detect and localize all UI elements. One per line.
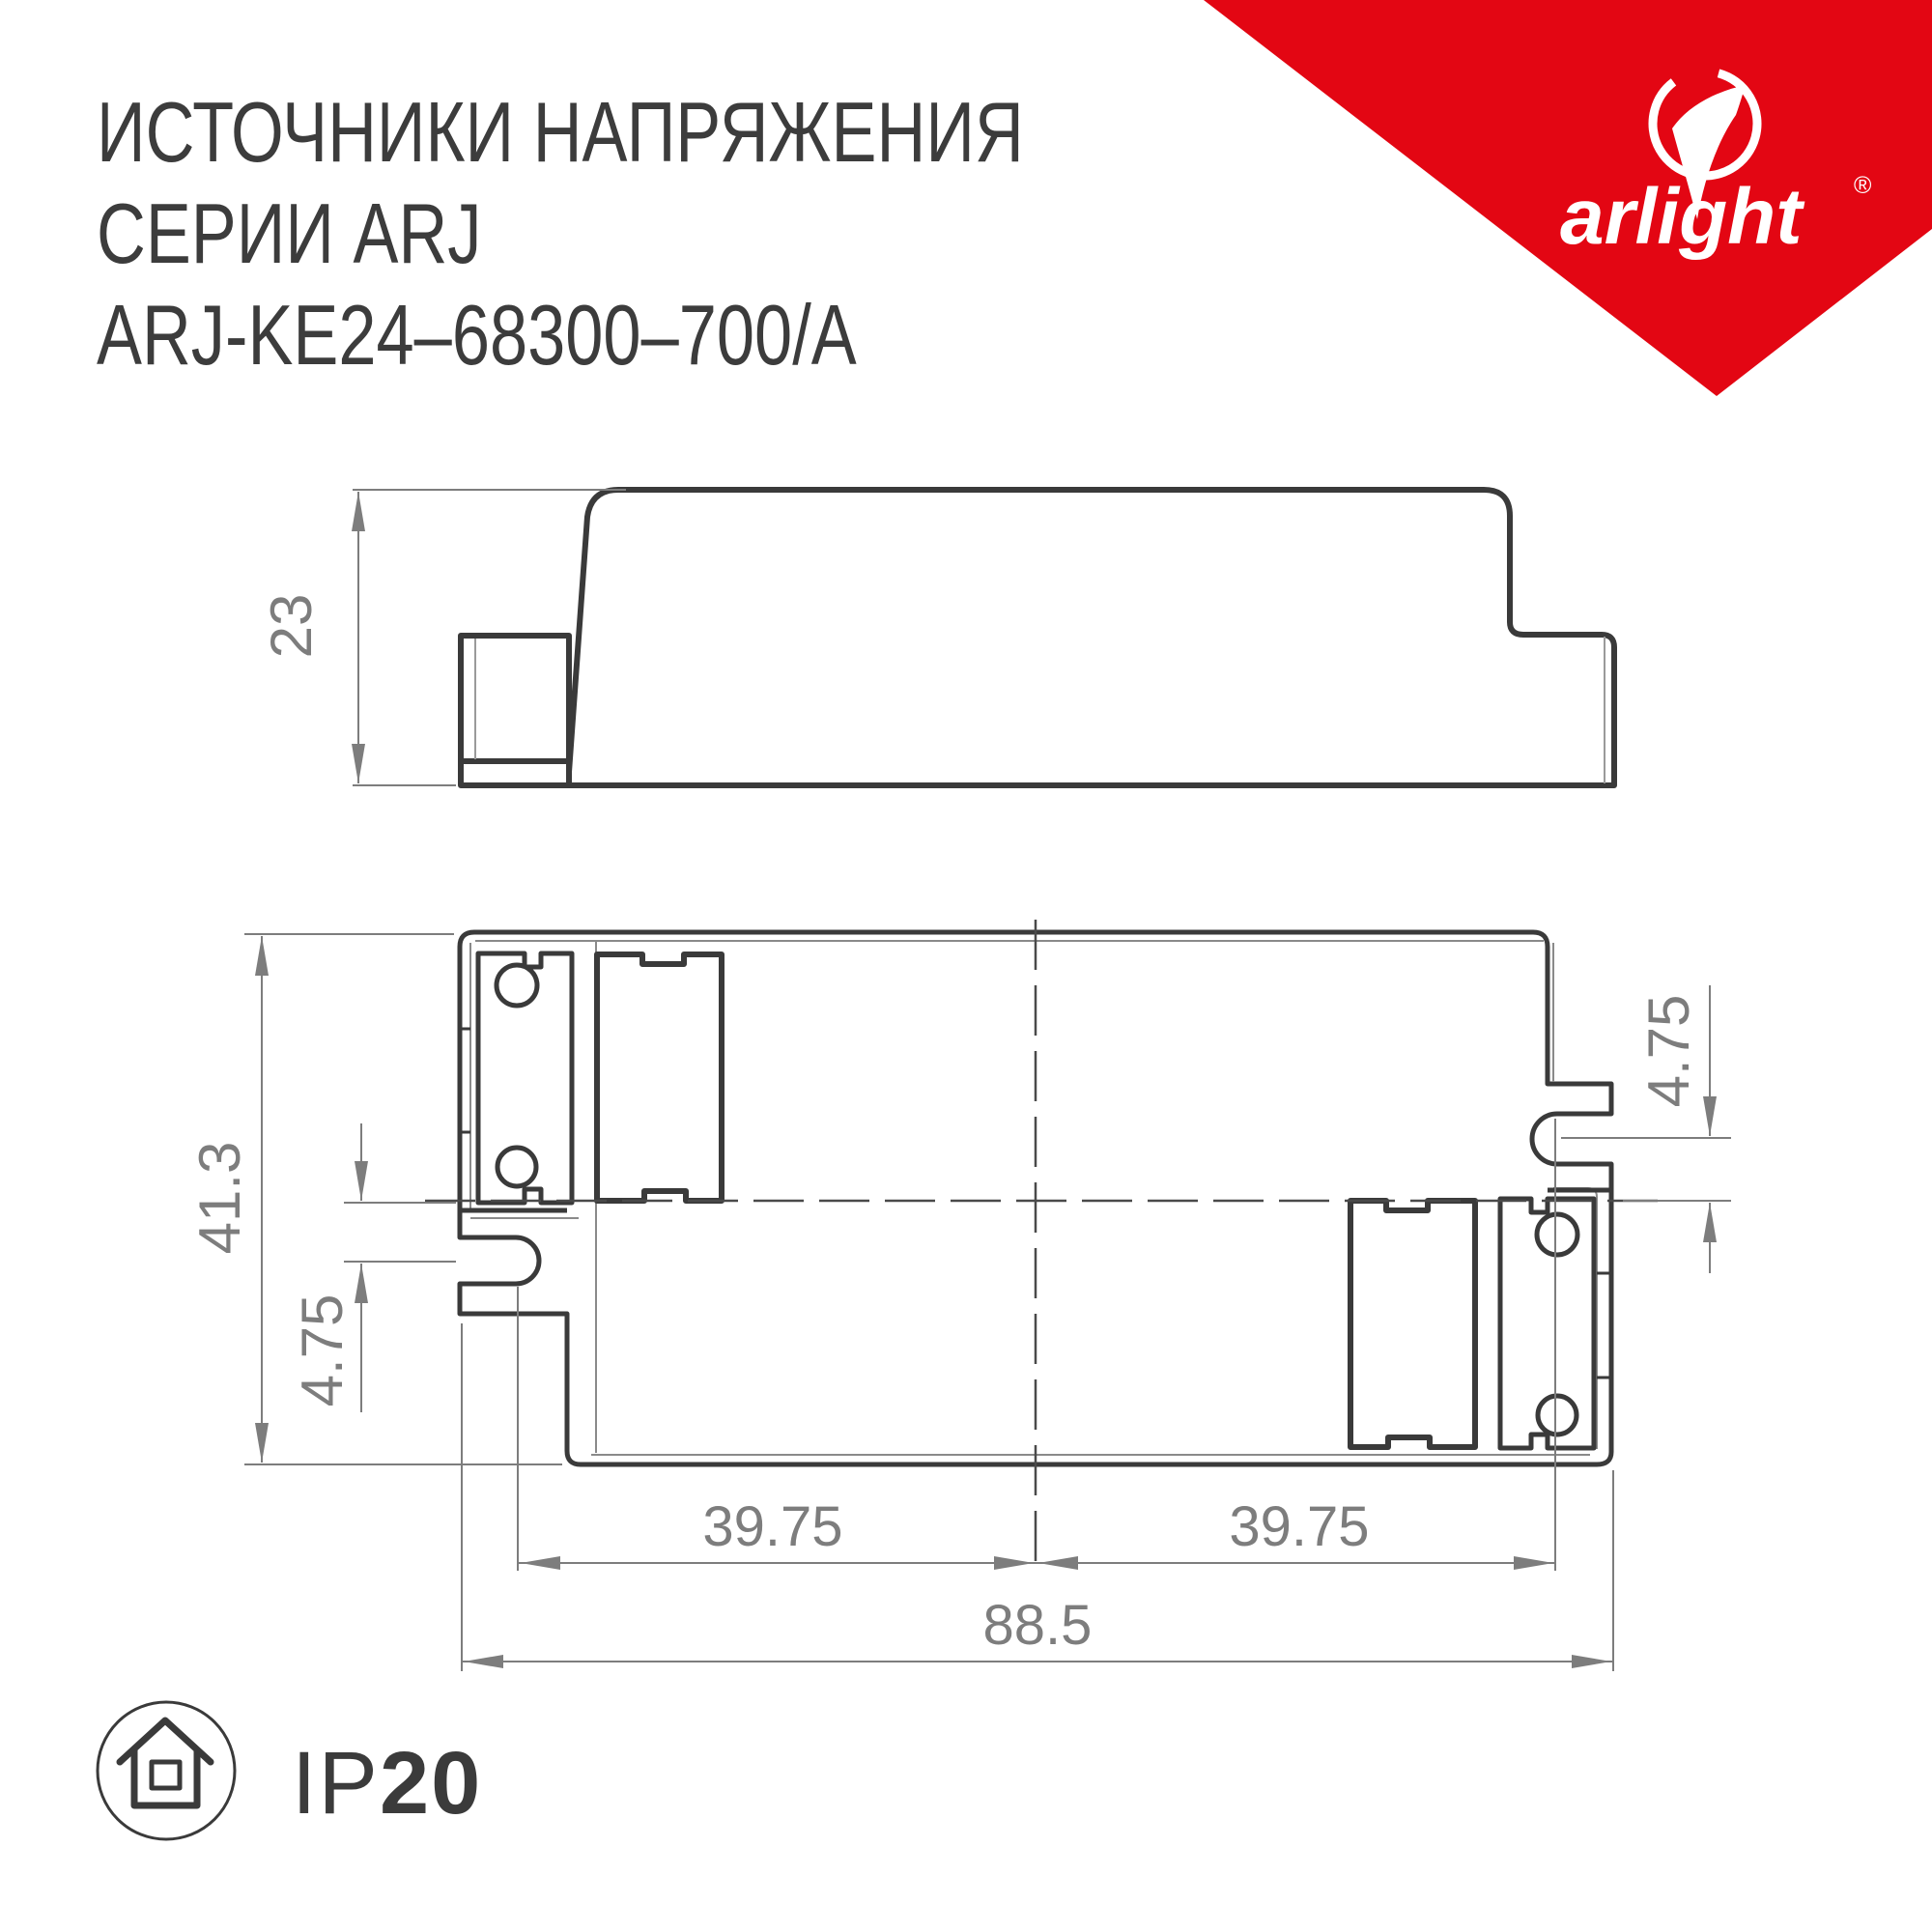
side-view-body-outline [568, 490, 1614, 785]
inner-module-left [597, 954, 722, 1201]
registered-mark-icon: ® [1854, 172, 1872, 199]
screw-hole [497, 1148, 536, 1186]
ip-rating-prefix: IP [292, 1734, 380, 1833]
logo-text: arlight [1560, 173, 1805, 261]
title-line-2: СЕРИИ ARJ [97, 183, 1024, 284]
dim-label-41-3: 41.3 [187, 1142, 252, 1255]
ip-badge [98, 1702, 235, 1839]
side-view [461, 490, 1614, 785]
page-title: ИСТОЧНИКИ НАПРЯЖЕНИЯ СЕРИИ ARJ ARJ-KE24–… [97, 81, 1024, 385]
arrowhead-down [352, 744, 365, 783]
dim-label-88-5: 88.5 [983, 1594, 1093, 1657]
screw-hole [1537, 1214, 1577, 1255]
dim-label-23: 23 [259, 594, 324, 659]
screw-hole [497, 965, 537, 1006]
dim-label-39-75-right: 39.75 [1229, 1495, 1369, 1558]
inner-module-right [1350, 1201, 1475, 1447]
dim-label-4-75-right: 4.75 [1636, 995, 1701, 1108]
ip-rating-value: 20 [380, 1734, 482, 1833]
dim-label-39-75-left: 39.75 [702, 1495, 842, 1558]
arrowhead-up [352, 492, 365, 531]
title-line-1: ИСТОЧНИКИ НАПРЯЖЕНИЯ [97, 81, 1024, 183]
screw-hole [1538, 1396, 1577, 1435]
ip-rating-label: IP20 [292, 1733, 482, 1834]
title-line-3: ARJ-KE24–68300–700/A [97, 284, 1024, 385]
dim-label-4-75-left: 4.75 [290, 1294, 355, 1407]
